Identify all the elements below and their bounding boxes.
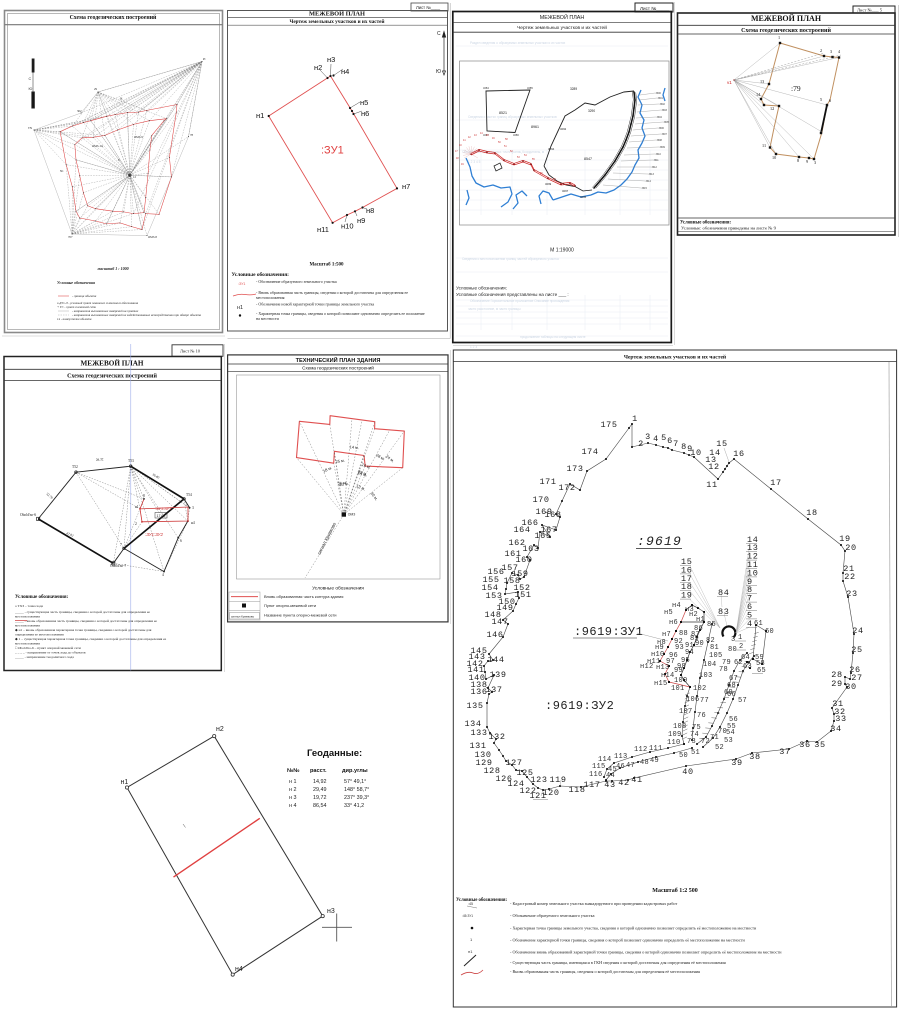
svg-text:55: 55 <box>532 158 535 161</box>
svg-text:29: 29 <box>831 679 842 689</box>
svg-text:3314: 3314 <box>646 180 652 183</box>
svg-text:Условные: обозначения приведен: Условные: обозначения приведены на листе… <box>681 226 777 231</box>
svg-text:3292: 3292 <box>560 127 567 131</box>
svg-text:70: 70 <box>718 728 727 736</box>
svg-text:н11: н11 <box>317 225 329 234</box>
svg-text:н5: н5 <box>360 98 368 107</box>
svg-text:43: 43 <box>474 134 477 137</box>
svg-text:н1: н1 <box>135 505 139 509</box>
svg-text:Схема геодезических построений: Схема геодезических построений <box>70 14 157 21</box>
svg-text:3311: 3311 <box>654 159 660 162</box>
svg-text:Лист №____: Лист №____ <box>416 5 441 10</box>
svg-text:40: 40 <box>459 144 462 147</box>
svg-text:107: 107 <box>679 708 693 716</box>
svg-text:20: 20 <box>845 543 856 553</box>
svg-text:5: 5 <box>820 97 822 102</box>
svg-text:46: 46 <box>616 763 625 771</box>
svg-text:ОМЗ-8: ОМЗ-8 <box>148 235 157 239</box>
svg-text:101: 101 <box>671 685 685 693</box>
svg-text:3: 3 <box>645 432 651 442</box>
svg-text:v1: v1 <box>727 80 732 85</box>
svg-text:78: 78 <box>719 666 728 674</box>
svg-text:72: 72 <box>701 738 710 746</box>
svg-text:8: 8 <box>797 158 799 163</box>
svg-text:ОМЗ: ОМЗ <box>348 513 356 517</box>
svg-text:8: 8 <box>143 494 145 498</box>
svg-text:Условные обозначения:: Условные обозначения: <box>456 898 508 903</box>
svg-text:н7: н7 <box>662 631 671 639</box>
svg-text:14 м.: 14 м. <box>349 444 359 450</box>
svg-text:местоположения: местоположения <box>15 615 40 619</box>
svg-text:46: 46 <box>492 137 495 140</box>
svg-text:116: 116 <box>589 771 603 779</box>
svg-text:о ТХЗ – точка хода: о ТХЗ – точка хода <box>15 604 43 608</box>
svg-text::9619:ЗУ2: :9619:ЗУ2 <box>545 699 614 713</box>
svg-text:3313: 3313 <box>649 173 655 176</box>
svg-text:7: 7 <box>120 543 122 547</box>
svg-text:14,92: 14,92 <box>313 779 327 785</box>
svg-text:н 4: н 4 <box>289 803 296 809</box>
svg-text:41: 41 <box>463 139 466 142</box>
svg-text:- Вновь образованная часть гра: - Вновь образованная часть границы, свед… <box>510 969 700 975</box>
svg-text:170: 170 <box>532 495 549 505</box>
svg-text:130: 130 <box>474 750 491 760</box>
svg-text:77: 77 <box>700 697 709 705</box>
svg-text:№№: №№ <box>287 768 299 774</box>
svg-text:115: 115 <box>592 763 606 771</box>
svg-text:н7: н7 <box>402 182 410 191</box>
svg-text:48: 48 <box>640 759 649 767</box>
svg-text:25 м.: 25 м. <box>335 458 345 464</box>
svg-text:3289: 3289 <box>570 87 577 91</box>
svg-text:10: 10 <box>690 448 701 458</box>
svg-text:Условные обозначения:: Условные обозначения: <box>15 595 69 600</box>
svg-text:50: 50 <box>679 752 688 760</box>
svg-text:12: 12 <box>133 175 137 179</box>
svg-text:3: 3 <box>731 636 736 644</box>
svg-text:Условные обозначения:: Условные обозначения: <box>456 286 507 291</box>
svg-text:МЕЖЕВОЙ ПЛАН: МЕЖЕВОЙ ПЛАН <box>751 14 822 23</box>
svg-text:30: 30 <box>845 682 856 692</box>
svg-text:N1: N1 <box>60 169 64 173</box>
svg-text:1 2: 1 2 3 4 5 <box>468 160 481 164</box>
svg-text:15: 15 <box>716 439 727 449</box>
svg-text:148° 58,7°: 148° 58,7° <box>344 787 369 793</box>
svg-text:Масштаб 1:500: Масштаб 1:500 <box>309 263 344 268</box>
svg-text:- Обозначение образуемого земе: - Обозначение образуемого земельного уча… <box>510 913 595 918</box>
svg-text:11: 11 <box>706 480 717 490</box>
svg-text:н4: н4 <box>341 67 349 76</box>
svg-text:146: 146 <box>486 630 503 640</box>
svg-text:110: 110 <box>667 739 681 747</box>
svg-text:н1: н1 <box>468 949 473 954</box>
svg-text:н5: н5 <box>664 609 673 617</box>
svg-text:93: 93 <box>675 644 684 652</box>
svg-text:11: 11 <box>762 143 766 148</box>
svg-text:167: 167 <box>540 525 557 535</box>
svg-text:н1: н1 <box>237 305 243 311</box>
svg-text:237° 39,3°: 237° 39,3° <box>344 795 369 801</box>
svg-text:3285: 3285 <box>527 86 533 90</box>
svg-text:47: 47 <box>455 150 458 153</box>
svg-text:- Обозначение характерной точк: - Обозначение характерной точки границы,… <box>510 938 745 944</box>
svg-text:173: 173 <box>566 464 583 474</box>
svg-text:42: 42 <box>618 778 629 788</box>
svg-text:6: 6 <box>180 539 182 543</box>
svg-text:Условные обозначения: Условные обозначения <box>57 281 95 285</box>
svg-text:н10: н10 <box>341 222 353 231</box>
svg-text:Obold'no-6: Obold'no-6 <box>20 513 36 517</box>
svg-text:13: 13 <box>760 79 764 84</box>
svg-text:61: 61 <box>754 620 763 628</box>
svg-text:161: 161 <box>504 549 521 559</box>
svg-text:2: 2 <box>638 439 644 449</box>
svg-text:33: 33 <box>835 714 846 724</box>
svg-text:Условные обозначения представл: Условные обозначения представлены на лис… <box>456 292 569 297</box>
svg-text:118: 118 <box>568 785 585 795</box>
svg-text:28.32: 28.32 <box>96 457 104 462</box>
svg-text:местоположения: местоположения <box>15 624 40 628</box>
svg-text:111: 111 <box>649 745 663 753</box>
svg-text::9619:ЗУ1: :9619:ЗУ1 <box>574 625 643 639</box>
svg-text:127: 127 <box>505 758 522 768</box>
svg-text:86,54: 86,54 <box>313 803 327 809</box>
svg-text:112: 112 <box>634 746 648 754</box>
svg-text:60: 60 <box>765 628 774 636</box>
svg-text:174: 174 <box>581 447 598 457</box>
svg-text:159: 159 <box>511 569 528 579</box>
svg-text:продолжение таблицы на следующ: продолжение таблицы на следующем листе <box>520 335 586 339</box>
svg-text:1: 1 <box>632 414 638 424</box>
svg-text:н4: н4 <box>672 602 681 610</box>
svg-text:163: 163 <box>522 544 539 554</box>
svg-text:МЕЖЕВОЙ ПЛАН: МЕЖЕВОЙ ПЛАН <box>81 359 144 368</box>
svg-text:Чертеж земельных участков и их: Чертеж земельных участков и их частей <box>290 18 385 25</box>
svg-text:н6: н6 <box>669 619 678 627</box>
svg-text:6: 6 <box>667 436 673 446</box>
svg-text:3312: 3312 <box>652 166 658 169</box>
svg-text:Геоданные:: Геоданные: <box>307 748 362 759</box>
svg-text:169: 169 <box>535 507 552 517</box>
svg-text:133: 133 <box>470 728 487 738</box>
svg-text:н4: н4 <box>191 521 195 525</box>
svg-text:н6: н6 <box>361 109 369 118</box>
svg-text:16 м.: 16 м. <box>361 462 372 470</box>
svg-text:12: 12 <box>770 106 774 111</box>
svg-text:н9: н9 <box>357 216 365 225</box>
svg-text:3299: 3299 <box>545 182 552 186</box>
svg-text:17: 17 <box>770 478 781 488</box>
svg-text:43: 43 <box>604 780 615 790</box>
svg-text:3301: 3301 <box>658 97 664 100</box>
svg-text:175: 175 <box>600 420 617 430</box>
svg-text:Obold'no-7: Obold'no-7 <box>110 564 126 568</box>
svg-text:- граница объекта: - граница объекта <box>72 294 97 298</box>
svg-text:Схема геодезических построений: Схема геодезических построений <box>67 373 157 380</box>
svg-text:н4: н4 <box>235 966 243 973</box>
svg-text:3315: 3315 <box>642 187 648 190</box>
svg-text:29: 29 <box>94 87 98 91</box>
svg-text:88: 88 <box>679 630 688 638</box>
svg-text:н12: н12 <box>640 663 654 671</box>
svg-text:4: 4 <box>838 49 841 54</box>
svg-text:ОМЗ-9: ОМЗ-9 <box>134 135 143 139</box>
svg-text:81: 81 <box>710 644 719 652</box>
svg-text:определения ее местоположения: определения ее местоположения <box>15 633 64 637</box>
svg-text:н3: н3 <box>327 55 335 64</box>
svg-text:- Существующая часть границы,: - Существующая часть границы, имеющаяся … <box>510 960 726 966</box>
svg-text:- Обозначение образуемого земе: - Обозначение образуемого земельного уча… <box>256 279 337 284</box>
svg-text:73: 73 <box>687 738 696 746</box>
svg-text:51: 51 <box>691 749 700 757</box>
svg-text:135: 135 <box>466 701 483 711</box>
svg-text:Название пункта опорно-межевой: Название пункта опорно-межевой сети <box>264 613 337 618</box>
svg-text:Масштаб 1:2 500: Масштаб 1:2 500 <box>652 887 697 894</box>
svg-text:90: 90 <box>695 640 704 648</box>
svg-text:42: 42 <box>468 136 471 139</box>
svg-text:41: 41 <box>631 775 642 785</box>
svg-text:М 1:19000: М 1:19000 <box>550 248 574 254</box>
svg-text:Сведения о частях границ образ: Сведения о частях границ образуемых земе… <box>468 115 557 119</box>
svg-text:22: 22 <box>844 572 855 582</box>
svg-text:Условные обозначения: Условные обозначения <box>312 586 364 592</box>
svg-text:Т54: Т54 <box>186 493 192 497</box>
svg-text:4: 4 <box>653 434 659 444</box>
svg-text:40: 40 <box>682 767 693 777</box>
svg-text:3295: 3295 <box>580 195 587 199</box>
svg-text:н13: н13 <box>656 664 670 672</box>
svg-text:Зt: Зt <box>119 96 123 101</box>
svg-text:3: 3 <box>830 49 832 54</box>
svg-text:дир.углы: дир.углы <box>342 768 368 774</box>
svg-text:Пункт опорно-межевой сети: Пункт опорно-межевой сети <box>264 603 316 608</box>
svg-text:14 - номер точки объекта: 14 - номер точки объекта <box>57 317 92 321</box>
svg-text::ЗУ1: :ЗУ1 <box>321 145 344 157</box>
svg-text:119: 119 <box>549 775 566 785</box>
svg-text:102: 102 <box>693 685 707 693</box>
svg-text:707: 707 <box>68 235 73 239</box>
svg-text:39: 39 <box>731 758 742 768</box>
svg-text:29,49: 29,49 <box>313 787 327 793</box>
svg-text:106: 106 <box>686 696 700 704</box>
svg-text:28 м.: 28 м. <box>375 452 386 461</box>
svg-text::ЗУ1:ЗУ2: :ЗУ1:ЗУ2 <box>145 532 163 537</box>
svg-text:Т53: Т53 <box>128 459 134 463</box>
svg-text:9: 9 <box>806 159 808 164</box>
svg-text:34: 34 <box>830 724 841 734</box>
svg-text:Pt: Pt <box>203 57 206 61</box>
svg-text:171: 171 <box>539 477 556 487</box>
svg-text:8521: 8521 <box>499 111 507 115</box>
svg-text:145: 145 <box>470 646 487 656</box>
svg-text:Лист №_____: Лист №_____ <box>640 6 669 11</box>
svg-text::9619: :9619 <box>637 534 682 549</box>
svg-text:местоположения: местоположения <box>256 295 285 300</box>
svg-text:57: 57 <box>738 697 747 705</box>
svg-text:32.70: 32.70 <box>45 492 54 500</box>
svg-text:4: 4 <box>162 573 164 577</box>
svg-text:132: 132 <box>488 732 505 742</box>
svg-text:9: 9 <box>118 158 120 162</box>
svg-text:н1: н1 <box>256 111 264 120</box>
svg-text:18: 18 <box>806 508 817 518</box>
svg-text:С: С <box>29 77 32 81</box>
svg-text::79: :79 <box>791 84 801 93</box>
svg-text:58: 58 <box>505 138 508 141</box>
svg-text:_____ - направление теодолитно: _____ - направление теодолитного хода <box>14 655 74 659</box>
svg-text:53: 53 <box>724 737 733 745</box>
svg-text:103: 103 <box>699 672 713 680</box>
svg-text:125: 125 <box>516 768 533 778</box>
svg-text:н2: н2 <box>314 63 322 72</box>
svg-text:ОМЗ-1А: ОМЗ-1А <box>92 144 104 148</box>
svg-text:Т52: Т52 <box>72 465 78 469</box>
svg-text:3303: 3303 <box>662 109 668 112</box>
svg-text:53: 53 <box>517 156 520 159</box>
svg-text:36: 36 <box>799 740 810 750</box>
svg-text:Схема геодезических построений: Схема геодезических построений <box>302 364 374 370</box>
svg-text:56: 56 <box>729 716 738 724</box>
svg-text:8961: 8961 <box>531 125 539 129</box>
svg-text:37: 37 <box>779 747 790 757</box>
svg-text:78: 78 <box>190 133 194 137</box>
svg-text:3308: 3308 <box>657 139 663 142</box>
svg-text:Чертеж земельных участков и их: Чертеж земельных участков и их частей <box>517 24 607 31</box>
svg-text:24: 24 <box>852 626 863 636</box>
svg-text:54: 54 <box>524 154 527 157</box>
svg-text:сигнал Кривково: сигнал Кривково <box>231 614 254 618</box>
svg-text:- Характерная точка границы зе: - Характерная точка границы земельного у… <box>510 926 757 932</box>
svg-text:49: 49 <box>461 163 464 166</box>
svg-text::45: :45 <box>468 902 473 906</box>
svg-text:Условные обозначения:: Условные обозначения: <box>232 271 290 278</box>
svg-text:Лист №___ 5: Лист №___ 5 <box>857 8 883 13</box>
svg-text::45:ЗУ1: :45:ЗУ1 <box>462 914 473 918</box>
svg-text:н 1: н 1 <box>289 779 296 785</box>
svg-text:□ Obold'no-6 – пункт опорной м: □ Obold'no-6 – пункт опорной межевой сет… <box>15 646 81 650</box>
svg-text:Раздел сведения о образуемых з: Раздел сведения о образуемых земельных у… <box>470 41 566 45</box>
svg-text:части расстояние, м: части расстояние, м части границы <box>468 307 521 311</box>
svg-text:Обозначение Горизонтальное: Обозначение Горизонтальное проложение Оп… <box>470 299 570 303</box>
svg-text:8547: 8547 <box>584 157 592 161</box>
svg-text:25: 25 <box>851 645 862 655</box>
svg-text:3305: 3305 <box>664 121 670 124</box>
svg-text:105: 105 <box>709 652 723 660</box>
svg-text:94: 94 <box>685 649 694 657</box>
svg-text:- Обозначение вновь образованн: - Обозначение вновь образованной характе… <box>510 950 782 956</box>
svg-text:33° 41,2: 33° 41,2 <box>344 803 364 809</box>
svg-text:47: 47 <box>626 762 635 770</box>
svg-text:24 м.: 24 м. <box>385 454 396 464</box>
svg-text:МЕЖЕВОЙ ПЛАН: МЕЖЕВОЙ ПЛАН <box>309 9 365 17</box>
svg-text:3304: 3304 <box>657 116 663 119</box>
svg-text:3309: 3309 <box>660 146 666 149</box>
svg-text:99: 99 <box>674 667 683 675</box>
svg-text:н2: н2 <box>216 726 224 733</box>
svg-text:местоположения: местоположения <box>15 642 40 646</box>
svg-text:113: 113 <box>614 753 628 761</box>
svg-text:76: 76 <box>697 712 706 720</box>
svg-text:3: 3 <box>814 160 816 165</box>
svg-text:н3: н3 <box>327 908 335 915</box>
svg-text:н15: н15 <box>654 680 668 688</box>
svg-text:3284: 3284 <box>483 86 489 90</box>
svg-text:49: 49 <box>650 757 659 765</box>
svg-text:3294: 3294 <box>548 147 555 151</box>
svg-text:Ю: Ю <box>29 87 33 91</box>
svg-text:14: 14 <box>709 448 720 458</box>
svg-text:1: 1 <box>470 937 473 942</box>
svg-text:н 2: н 2 <box>289 787 296 793</box>
svg-text:ТN: ТN <box>28 126 33 130</box>
svg-text:109: 109 <box>668 731 682 739</box>
svg-text:85: 85 <box>707 621 716 629</box>
svg-text:69: 69 <box>724 689 733 697</box>
svg-text:172: 172 <box>558 483 575 493</box>
svg-text:134: 134 <box>464 719 481 729</box>
svg-text:масштаб 1 : 1000: масштаб 1 : 1000 <box>96 266 128 271</box>
svg-text:48: 48 <box>456 157 459 160</box>
svg-text:3307: 3307 <box>662 133 668 136</box>
svg-text:Лист № 10: Лист № 10 <box>180 349 201 354</box>
svg-text:3286: 3286 <box>513 133 519 137</box>
svg-text:20 м.: 20 м. <box>370 491 380 502</box>
svg-text:108: 108 <box>673 723 687 731</box>
svg-text:3306: 3306 <box>659 127 665 130</box>
svg-text:64: 64 <box>741 654 750 662</box>
svg-text:51: 51 <box>504 145 507 148</box>
svg-text:18 м.: 18 м. <box>322 465 333 474</box>
svg-text:3290: 3290 <box>588 109 595 113</box>
svg-text:139: 139 <box>489 670 506 680</box>
svg-text:144: 144 <box>487 655 504 665</box>
svg-text:131: 131 <box>469 741 486 751</box>
svg-text:- Обозначение новой характерно: - Обозначение новой характерной точки гр… <box>256 302 374 307</box>
svg-text:8: 8 <box>681 442 687 452</box>
svg-text:н1: н1 <box>121 779 129 786</box>
svg-text:3302: 3302 <box>660 103 666 106</box>
svg-text:ТЕХНИЧЕСКИЙ ПЛАН ЗДАНИЯ: ТЕХНИЧЕСКИЙ ПЛАН ЗДАНИЯ <box>296 356 381 364</box>
svg-text:45: 45 <box>486 134 489 137</box>
svg-text:6: 6 <box>829 98 831 103</box>
svg-text:17.02: 17.02 <box>157 514 166 518</box>
svg-text:104: 104 <box>703 661 717 669</box>
svg-text:н1: н1 <box>696 616 705 624</box>
svg-text:3310: 3310 <box>656 153 662 156</box>
svg-text:10: 10 <box>772 155 776 160</box>
svg-text:52: 52 <box>715 744 724 752</box>
svg-text:1: 1 <box>778 35 780 40</box>
svg-text:Сведения о местоположении гран: Сведения о местоположении границ частей … <box>462 257 559 261</box>
svg-text:5: 5 <box>661 433 667 443</box>
svg-text:Вновь образованная часть конту: Вновь образованная часть контура здания <box>264 594 343 599</box>
svg-text:сигнал Кривково: сигнал Кривково <box>316 521 337 555</box>
svg-text:80: 80 <box>728 646 737 654</box>
svg-text:302: 302 <box>77 109 82 113</box>
svg-text:_ _ _ _ - направление от точек: _ _ _ _ - направление от точек хода до о… <box>14 651 86 655</box>
svg-text:3: 3 <box>192 506 194 510</box>
svg-text:13 м.: 13 м. <box>356 483 367 491</box>
svg-text:166: 166 <box>521 518 538 528</box>
svg-text:на местности: на местности <box>256 316 280 321</box>
svg-text:117: 117 <box>583 780 600 790</box>
svg-text:н 3: н 3 <box>289 795 296 801</box>
svg-text:н14: н14 <box>661 672 675 680</box>
svg-text:н8: н8 <box>366 206 374 215</box>
svg-text:МЕЖЕВОЙ ПЛАН: МЕЖЕВОЙ ПЛАН <box>540 13 585 21</box>
svg-text:3300: 3300 <box>656 92 662 95</box>
svg-text:- Характерная точка границы, с: - Характерная точка границы, сведения о … <box>256 311 425 317</box>
